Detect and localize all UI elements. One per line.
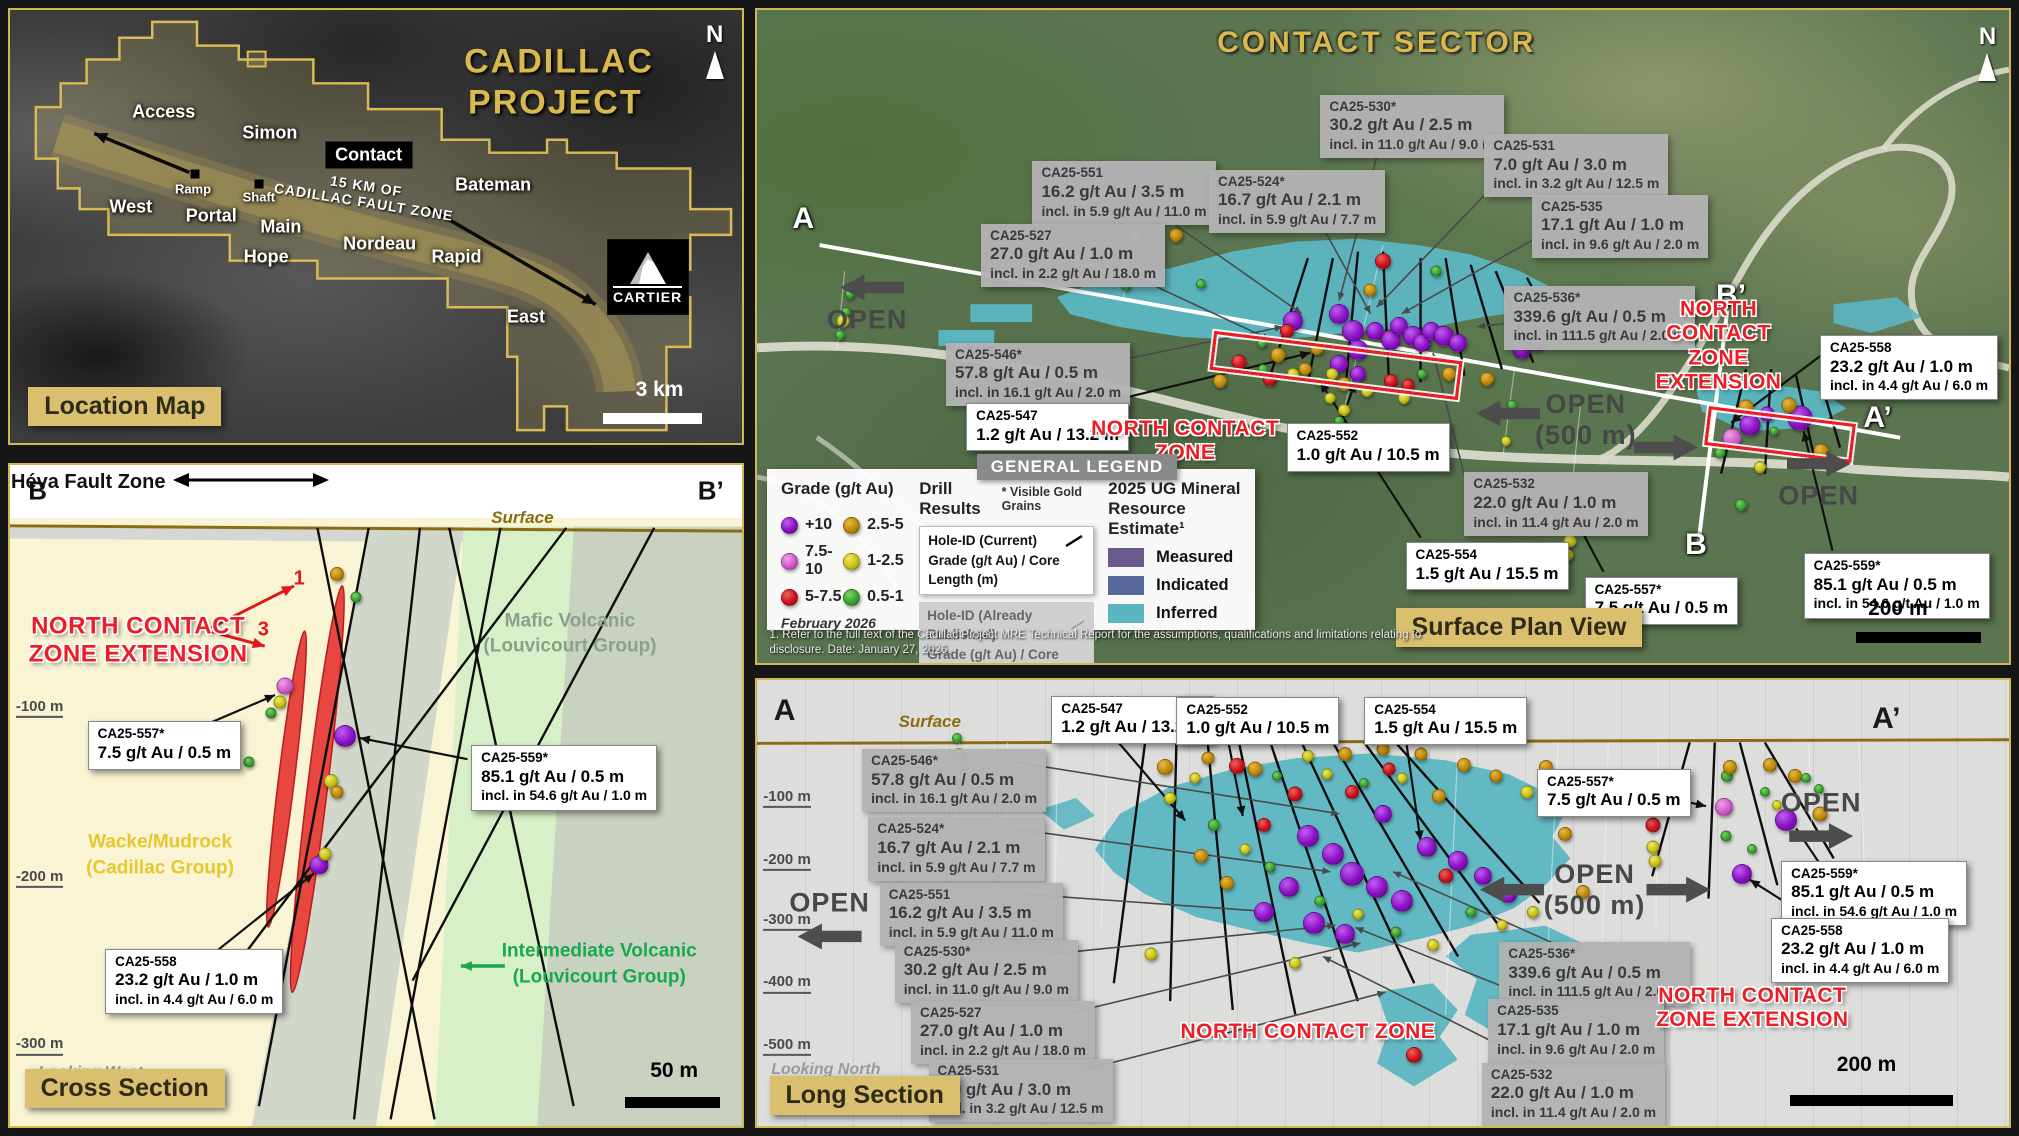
callout-i: incl. in 2.2 g/t Au / 18.0 m bbox=[920, 1042, 1086, 1059]
drill-callout-CA25-532: CA25-53222.0 g/t Au / 1.0 mincl. in 11.4… bbox=[1482, 1063, 1665, 1126]
grade-dot bbox=[1448, 851, 1468, 871]
label-lensnum: 1 bbox=[294, 568, 305, 591]
line-trace bbox=[1170, 742, 1176, 1001]
grade-dot bbox=[1303, 912, 1325, 934]
compass-letter: N bbox=[1979, 23, 1996, 50]
grade-dot bbox=[1754, 461, 1766, 473]
grade-dot bbox=[1383, 763, 1396, 776]
mre-title: 2025 UG Mineral Resource Estimate¹ bbox=[1108, 479, 1241, 539]
grade-dot bbox=[1449, 334, 1467, 352]
callout-i: incl. in 3.2 g/t Au / 12.5 m bbox=[1493, 175, 1659, 192]
grade-legend-dot bbox=[843, 589, 860, 606]
grade-dot bbox=[1732, 864, 1752, 884]
grade-dot bbox=[351, 592, 362, 603]
label-marker: A bbox=[774, 694, 796, 729]
grade-legend-label: 7.5-10 bbox=[805, 543, 843, 579]
label-open: OPEN bbox=[1778, 481, 1859, 512]
label-redzone: NORTHCONTACTZONEEXTENSION bbox=[1656, 298, 1782, 395]
callout-i: incl. in 5.9 g/t Au / 7.7 m bbox=[877, 859, 1035, 876]
grade-legend-label: +10 bbox=[805, 516, 832, 534]
label-zone: West bbox=[109, 197, 152, 218]
callout-g: 16.7 g/t Au / 2.1 m bbox=[877, 838, 1035, 859]
grade-dot bbox=[1297, 825, 1319, 847]
mre-legend-item-inferred: Inferred bbox=[1108, 604, 1241, 623]
panel-label-location-map: Location Map bbox=[28, 387, 221, 426]
grade-dot bbox=[1257, 818, 1271, 832]
label-depth: -200 m bbox=[763, 851, 811, 871]
callout-h: CA25-530* bbox=[904, 944, 1069, 960]
callout-h: CA25-552 bbox=[1297, 428, 1440, 444]
legend-grade-column: Grade (g/t Au) +107.5-105-7.52.5-51-2.50… bbox=[781, 479, 905, 622]
grade-dot bbox=[1496, 920, 1507, 931]
label-depth: -100 m bbox=[16, 698, 64, 718]
grade-dot bbox=[1480, 372, 1494, 386]
grade-dot bbox=[1164, 792, 1176, 804]
callout-h: CA25-558 bbox=[1781, 923, 1939, 939]
line-trace bbox=[259, 528, 369, 1106]
grade-dot bbox=[1414, 747, 1427, 760]
callout-g: 23.2 g/t Au / 1.0 m bbox=[1781, 939, 1939, 960]
callout-h: CA25-527 bbox=[990, 228, 1156, 244]
drill-callout-CA25-530*: CA25-530*30.2 g/t Au / 2.5 mincl. in 11.… bbox=[1320, 95, 1503, 158]
grade-legend-dot bbox=[781, 553, 798, 570]
callout-g: 1.5 g/t Au / 15.5 m bbox=[1416, 564, 1559, 585]
callout-i: incl. in 4.4 g/t Au / 6.0 m bbox=[1830, 377, 1988, 394]
callout-g: 22.0 g/t Au / 1.0 m bbox=[1473, 493, 1638, 514]
grade-legend-dot bbox=[843, 553, 860, 570]
label-sq bbox=[191, 169, 200, 178]
mre-swatch bbox=[1108, 548, 1144, 567]
panel-label-long-section: Long Section bbox=[770, 1076, 960, 1115]
current-sub: Grade (g/t Au) / Core Length (m) bbox=[928, 553, 1060, 588]
callout-h: CA25-527 bbox=[920, 1005, 1086, 1021]
label-zone: Main bbox=[260, 216, 301, 237]
grade-dot bbox=[1364, 284, 1377, 297]
line-trace bbox=[1471, 265, 1502, 369]
grade-legend-item: 7.5-10 bbox=[781, 543, 843, 579]
callout-i: incl. in 9.6 g/t Au / 2.0 m bbox=[1497, 1041, 1655, 1058]
callout-i: incl. in 4.4 g/t Au / 6.0 m bbox=[115, 991, 273, 1008]
label-depth: -100 m bbox=[763, 788, 811, 808]
north-compass: N bbox=[1978, 23, 1996, 81]
grade-dot bbox=[1248, 762, 1263, 777]
drill-callout-CA25-551: CA25-55116.2 g/t Au / 3.5 mincl. in 5.9 … bbox=[880, 883, 1063, 946]
line-ghost bbox=[1055, 742, 1058, 903]
grade-dot bbox=[1288, 786, 1303, 801]
grade-legend-label: 5-7.5 bbox=[805, 588, 841, 606]
label-lensnum: 3 bbox=[258, 619, 269, 642]
callout-i: incl. in 11.4 g/t Au / 2.0 m bbox=[1473, 514, 1638, 531]
drill-callout-CA25-551: CA25-55116.2 g/t Au / 3.5 mincl. in 5.9 … bbox=[1032, 161, 1215, 224]
callout-i: incl. in 5.9 g/t Au / 11.0 m bbox=[889, 924, 1054, 941]
grade-dot bbox=[1289, 957, 1301, 969]
grade-dot bbox=[1801, 773, 1811, 783]
panel-label-cross-section: Cross Section bbox=[25, 1069, 225, 1108]
callout-h: CA25-557* bbox=[98, 726, 232, 742]
mre-label: Inferred bbox=[1156, 604, 1217, 623]
mre-label: Indicated bbox=[1156, 576, 1228, 595]
grade-dot bbox=[1272, 771, 1282, 781]
drill-callout-CA25-552: CA25-5521.0 g/t Au / 10.5 m bbox=[1176, 697, 1339, 745]
heva-fault-zone-label: Héva Fault Zone bbox=[11, 471, 331, 494]
visible-gold-note: * Visible Gold Grains bbox=[1002, 485, 1095, 513]
drill-callout-CA25-559*: CA25-559*85.1 g/t Au / 0.5 mincl. in 54.… bbox=[471, 745, 657, 810]
line-trace bbox=[354, 528, 420, 1120]
drill-callout-CA25-558: CA25-55823.2 g/t Au / 1.0 mincl. in 4.4 … bbox=[1820, 335, 1998, 400]
grade-legend-item: 0.5-1 bbox=[843, 579, 905, 615]
mre-categories: MeasuredIndicatedInferred bbox=[1108, 548, 1241, 623]
callout-g: 1.5 g/t Au / 15.5 m bbox=[1374, 718, 1517, 739]
marker-b-prime: B’ bbox=[698, 476, 724, 507]
grade-dot bbox=[1208, 819, 1220, 831]
label-open: OPEN(500 m) bbox=[1535, 389, 1637, 451]
current-label: Hole-ID (Current) bbox=[928, 531, 1037, 551]
label-depth: -300 m bbox=[763, 911, 811, 931]
grade-legend-dot bbox=[843, 517, 860, 534]
grade-dot bbox=[952, 733, 962, 743]
callout-h: CA25-551 bbox=[889, 887, 1054, 903]
drill-callout-CA25-559*: CA25-559*85.1 g/t Au / 0.5 mincl. in 54.… bbox=[1781, 861, 1967, 926]
callout-g: 27.0 g/t Au / 1.0 m bbox=[920, 1021, 1086, 1042]
grade-dot bbox=[1280, 324, 1294, 338]
callout-i: incl. in 11.4 g/t Au / 2.0 m bbox=[1491, 1104, 1656, 1121]
line-ghost bbox=[1101, 742, 1107, 925]
drill-callout-CA25-554: CA25-5541.5 g/t Au / 15.5 m bbox=[1406, 542, 1569, 590]
grade-dot bbox=[1157, 759, 1173, 775]
grade-dot bbox=[1715, 798, 1733, 816]
grade-dot bbox=[1430, 266, 1441, 277]
mre-legend-item-indicated: Indicated bbox=[1108, 576, 1241, 595]
callout-h: CA25-552 bbox=[1186, 702, 1329, 718]
label-surface: Surface bbox=[899, 713, 961, 733]
callout-g: 85.1 g/t Au / 0.5 m bbox=[481, 767, 647, 788]
label-redzone: NORTH CONTACTZONE EXTENSION bbox=[1656, 984, 1849, 1032]
label-zone: Portal bbox=[186, 205, 237, 226]
callout-i: incl. in 5.9 g/t Au / 11.0 m bbox=[1041, 203, 1206, 220]
grade-dot bbox=[1321, 768, 1332, 779]
grade-dot bbox=[243, 757, 254, 768]
callout-g: 85.1 g/t Au / 0.5 m bbox=[1791, 882, 1957, 903]
grade-dot bbox=[1265, 862, 1276, 873]
grade-dot bbox=[1427, 939, 1439, 951]
drill-callout-CA25-558: CA25-55823.2 g/t Au / 1.0 mincl. in 4.4 … bbox=[1771, 918, 1949, 983]
scale-bar bbox=[625, 1097, 720, 1108]
grade-dot bbox=[1646, 817, 1661, 832]
callout-g: 17.1 g/t Au / 1.0 m bbox=[1497, 1020, 1655, 1041]
scale-bar bbox=[603, 413, 702, 424]
grade-dot bbox=[1375, 253, 1391, 269]
grade-legend-dot bbox=[781, 517, 798, 534]
label-marker: A’ bbox=[1872, 702, 1900, 737]
mre-legend-item-measured: Measured bbox=[1108, 548, 1241, 567]
compass-letter: N bbox=[706, 21, 723, 48]
grade-dot bbox=[1338, 747, 1352, 761]
grade-dot bbox=[1760, 787, 1770, 797]
grade-dot bbox=[1254, 902, 1274, 922]
drill-callout-CA25-524*: CA25-524*16.7 g/t Au / 2.1 mincl. in 5.9… bbox=[1209, 170, 1385, 233]
line-sline bbox=[10, 526, 742, 531]
callout-g: 1.0 g/t Au / 10.5 m bbox=[1186, 718, 1329, 739]
label-depth: -500 m bbox=[763, 1036, 811, 1056]
north-arrow-icon bbox=[1978, 53, 1996, 81]
cross-section-panel: B Héva Fault Zone B’ 50 m Cross Section … bbox=[8, 463, 744, 1128]
drill-callout-CA25-530*: CA25-530*30.2 g/t Au / 2.5 mincl. in 11.… bbox=[895, 940, 1078, 1003]
grade-dot bbox=[1714, 447, 1725, 458]
grade-dot bbox=[1196, 279, 1206, 289]
scale-label: 50 m bbox=[650, 1059, 698, 1083]
callout-h: CA25-554 bbox=[1416, 547, 1559, 563]
grade-dot bbox=[1325, 392, 1336, 403]
north-compass: N bbox=[706, 21, 724, 79]
scale-bar bbox=[1790, 1095, 1953, 1106]
callout-g: 7.0 g/t Au / 3.0 m bbox=[1493, 155, 1659, 176]
grade-dot bbox=[1213, 374, 1227, 388]
grade-dot bbox=[1558, 827, 1572, 841]
scale-label: 200 m bbox=[1868, 597, 1928, 621]
label-redzone: NORTH CONTACTZONE EXTENSION bbox=[29, 613, 248, 668]
grade-dot bbox=[1190, 773, 1201, 784]
callout-g: 339.6 g/t Au / 0.5 m bbox=[1508, 963, 1680, 984]
callout-g: 23.2 g/t Au / 1.0 m bbox=[1830, 357, 1988, 378]
grade-legend-item: 5-7.5 bbox=[781, 579, 843, 615]
figure-root: Contact N CARTIER 3 km Location Map CADI… bbox=[0, 0, 2019, 1136]
grade-dot bbox=[1340, 862, 1364, 886]
legend-mre-column: 2025 UG Mineral Resource Estimate¹ Measu… bbox=[1108, 479, 1241, 622]
callout-h: CA25-532 bbox=[1473, 476, 1638, 492]
callout-h: CA25-558 bbox=[115, 954, 273, 970]
grade-dot bbox=[1747, 844, 1757, 854]
grade-title: Grade (g/t Au) bbox=[781, 479, 905, 499]
scale-bar bbox=[1856, 632, 1981, 643]
label-zone: East bbox=[507, 307, 545, 328]
grade-dot bbox=[1229, 758, 1245, 774]
grade-dot bbox=[1302, 750, 1314, 762]
legend-holeid-current: Hole-ID (Current) Grade (g/t Au) / Core … bbox=[919, 526, 1094, 595]
callout-g: 23.2 g/t Au / 1.0 m bbox=[115, 970, 273, 991]
arrowhead bbox=[1352, 942, 1361, 949]
arrowhead bbox=[1322, 867, 1330, 874]
arrowhead bbox=[1236, 805, 1245, 816]
label-zone: Hope bbox=[244, 246, 289, 267]
callout-h: CA25-551 bbox=[1041, 165, 1206, 181]
scale-label: 200 m bbox=[1837, 1053, 1897, 1077]
callout-h: CA25-559* bbox=[481, 750, 647, 766]
callout-h: CA25-557* bbox=[1547, 774, 1681, 790]
drill-callout-CA25-524*: CA25-524*16.7 g/t Au / 2.1 mincl. in 5.9… bbox=[868, 817, 1044, 880]
callout-g: 30.2 g/t Au / 2.5 m bbox=[904, 960, 1069, 981]
drill-callout-CA25-532: CA25-53222.0 g/t Au / 1.0 mincl. in 11.4… bbox=[1464, 472, 1647, 535]
label-marker: A’ bbox=[1863, 401, 1891, 436]
label-zone: Simon bbox=[242, 123, 297, 144]
grade-legend-item: 2.5-5 bbox=[843, 507, 905, 543]
callout-i: incl. in 111.5 g/t Au / 2.0 m bbox=[1508, 983, 1680, 1000]
arrowhead bbox=[360, 736, 371, 745]
mre-footnote: 1. Refer to the full text of the Cadilla… bbox=[770, 628, 1446, 658]
line-trace bbox=[1709, 742, 1715, 898]
grade-dot bbox=[1406, 1047, 1422, 1063]
label-open: OPEN bbox=[827, 305, 908, 336]
grade-dot bbox=[1465, 906, 1476, 917]
grade-dot bbox=[1338, 404, 1350, 416]
grade-dot bbox=[1781, 398, 1796, 413]
drill-callout-CA25-554: CA25-5541.5 g/t Au / 15.5 m bbox=[1364, 697, 1527, 745]
drill-callout-CA25-527: CA25-52727.0 g/t Au / 1.0 mincl. in 2.2 … bbox=[981, 224, 1165, 287]
grade-dot bbox=[330, 567, 344, 581]
callout-h: CA25-546* bbox=[871, 753, 1037, 769]
label-redzone: NORTH CONTACT ZONE bbox=[1180, 1020, 1435, 1044]
callout-g: 57.8 g/t Au / 0.5 m bbox=[871, 770, 1037, 791]
label-zone: Rapid bbox=[432, 246, 482, 267]
line-mapb bbox=[94, 133, 189, 172]
callout-i: incl. in 16.1 g/t Au / 2.0 m bbox=[871, 790, 1037, 807]
callout-h: CA25-535 bbox=[1497, 1003, 1655, 1019]
callout-i: incl. in 16.1 g/t Au / 2.0 m bbox=[955, 384, 1121, 401]
drill-callout-CA25-552: CA25-5521.0 g/t Au / 10.5 m bbox=[1287, 423, 1450, 471]
grade-dot bbox=[1432, 789, 1446, 803]
grade-dot bbox=[1648, 854, 1661, 867]
callout-h: CA25-524* bbox=[877, 821, 1035, 837]
cartier-logo: CARTIER bbox=[607, 239, 689, 315]
grade-dot bbox=[1194, 849, 1208, 863]
cartier-wordmark: CARTIER bbox=[613, 286, 682, 305]
label-zone: Ramp bbox=[175, 182, 211, 197]
grade-dot bbox=[1335, 924, 1355, 944]
label-zone: Access bbox=[132, 101, 195, 122]
legend-header: GENERAL LEGEND bbox=[977, 454, 1177, 480]
grade-dot bbox=[1169, 228, 1183, 242]
grade-dot bbox=[1220, 876, 1234, 890]
callout-g: 22.0 g/t Au / 1.0 m bbox=[1491, 1083, 1656, 1104]
grade-legend-label: 2.5-5 bbox=[867, 516, 903, 534]
callout-i: incl. in 5.9 g/t Au / 7.7 m bbox=[1218, 211, 1376, 228]
callout-i: incl. in 3.2 g/t Au / 12.5 m bbox=[938, 1100, 1104, 1117]
grade-legend-label: 1-2.5 bbox=[867, 552, 903, 570]
callout-g: 1.0 g/t Au / 10.5 m bbox=[1297, 445, 1440, 466]
callout-h: CA25-524* bbox=[1218, 174, 1376, 190]
label-marker: A bbox=[792, 202, 814, 237]
label-zone: Nordeau bbox=[343, 233, 416, 254]
callout-g: 7.5 g/t Au / 0.5 m bbox=[98, 743, 232, 764]
label-lm-title: PROJECT bbox=[468, 84, 643, 123]
callout-h: CA25-532 bbox=[1491, 1067, 1656, 1083]
arrowhead bbox=[1695, 800, 1706, 809]
grade-dot bbox=[1457, 758, 1471, 772]
grade-dot bbox=[331, 786, 344, 799]
callout-h: CA25-531 bbox=[1493, 138, 1659, 154]
grade-dot bbox=[1374, 805, 1392, 823]
callout-g: 27.0 g/t Au / 1.0 m bbox=[990, 244, 1156, 265]
line-trace bbox=[317, 528, 434, 1120]
grade-legend-item: +10 bbox=[781, 507, 843, 543]
heva-label-text: Héva Fault Zone bbox=[11, 471, 165, 493]
grade-dot bbox=[318, 847, 331, 860]
callout-g: 30.2 g/t Au / 2.5 m bbox=[1329, 115, 1494, 136]
callout-h: CA25-531 bbox=[938, 1063, 1104, 1079]
grade-dot bbox=[1763, 758, 1777, 772]
callout-h: CA25-554 bbox=[1374, 702, 1517, 718]
grade-dot bbox=[1240, 844, 1251, 855]
grade-dot bbox=[1390, 926, 1401, 937]
callout-h: CA25-546* bbox=[955, 347, 1121, 363]
drill-callout-CA25-527: CA25-52727.0 g/t Au / 1.0 mincl. in 2.2 … bbox=[911, 1001, 1095, 1064]
grade-dot bbox=[1723, 760, 1737, 774]
callout-g: 85.1 g/t Au / 0.5 m bbox=[1814, 575, 1980, 596]
drill-callout-CA25-558: CA25-55823.2 g/t Au / 1.0 mincl. in 4.4 … bbox=[105, 949, 283, 1014]
callout-h: CA25-535 bbox=[1541, 199, 1699, 215]
grade-legend-dot bbox=[781, 589, 798, 606]
label-open: OPEN bbox=[1781, 787, 1862, 818]
drill-callout-CA25-557*: CA25-557*7.5 g/t Au / 0.5 m bbox=[88, 721, 242, 769]
label-zone: Shaft bbox=[243, 191, 276, 206]
mre-swatch bbox=[1108, 576, 1144, 595]
grade-dot bbox=[1520, 785, 1533, 798]
grade-dot bbox=[1489, 769, 1502, 782]
label-marker: B bbox=[1685, 528, 1707, 563]
grade-dot bbox=[1345, 785, 1359, 799]
callout-h: CA25-557* bbox=[1595, 582, 1729, 598]
callout-i: incl. in 54.6 g/t Au / 1.0 m bbox=[481, 787, 647, 804]
contact-sector-highlight: Contact bbox=[325, 142, 412, 169]
grade-dot bbox=[1788, 769, 1802, 783]
line-lead bbox=[1067, 943, 1360, 1013]
cross-section-header: B Héva Fault Zone B’ bbox=[10, 465, 742, 518]
surface-plan-panel: CONTACT SECTOR N GENERAL LEGEND Grade (g… bbox=[755, 8, 2011, 665]
label-open: OPEN(500 m) bbox=[1544, 859, 1646, 921]
callout-i: incl. in 4.4 g/t Au / 6.0 m bbox=[1781, 960, 1939, 977]
label-unit: Mafic Volcanic(Louvicourt Group) bbox=[483, 608, 656, 659]
grade-dot bbox=[1359, 778, 1369, 788]
scale-label: 3 km bbox=[636, 378, 684, 402]
callout-h: CA25-559* bbox=[1814, 558, 1980, 574]
long-section-panel: Long Section 200 m AA’SurfaceNORTH CONTA… bbox=[755, 678, 2011, 1128]
grade-dot bbox=[1201, 752, 1214, 765]
drill-results-title: Drill Results bbox=[919, 479, 993, 519]
mountain-icon bbox=[626, 250, 670, 286]
grade-dot bbox=[1474, 867, 1492, 885]
grade-dot bbox=[1501, 436, 1511, 446]
callout-i: incl. in 9.6 g/t Au / 2.0 m bbox=[1541, 236, 1699, 253]
drill-callout-CA25-557*: CA25-557*7.5 g/t Au / 0.5 m bbox=[1537, 769, 1691, 817]
callout-h: CA25-559* bbox=[1791, 866, 1957, 882]
label-surface: Surface bbox=[491, 508, 553, 528]
grade-dot bbox=[1527, 906, 1539, 918]
arrowhead bbox=[461, 961, 472, 971]
callout-g: 7.0 g/t Au / 3.0 m bbox=[938, 1080, 1104, 1101]
grade-dot bbox=[1735, 499, 1747, 511]
grade-dot bbox=[1279, 877, 1299, 897]
double-arrow-icon bbox=[171, 472, 331, 488]
grade-dot bbox=[274, 695, 287, 708]
callout-g: 16.2 g/t Au / 3.5 m bbox=[1041, 182, 1206, 203]
legend-drill-column: Drill Results * Visible Gold Grains Hole… bbox=[919, 479, 1094, 622]
drill-callout-CA25-531: CA25-5317.0 g/t Au / 3.0 mincl. in 3.2 g… bbox=[1484, 134, 1668, 197]
grade-scale: +107.5-105-7.52.5-51-2.50.5-1 bbox=[781, 507, 905, 615]
grade-dot bbox=[1438, 869, 1453, 884]
callout-g: 16.2 g/t Au / 3.5 m bbox=[889, 903, 1054, 924]
line-lead bbox=[1047, 925, 1335, 954]
label-lm-title: CADILLAC bbox=[464, 42, 654, 81]
grade-dot bbox=[1721, 831, 1732, 842]
callout-i: incl. in 2.2 g/t Au / 18.0 m bbox=[990, 265, 1156, 282]
label-zone: Bateman bbox=[455, 175, 531, 196]
general-legend: GENERAL LEGEND Grade (g/t Au) +107.5-105… bbox=[767, 469, 1255, 630]
drill-callout-CA25-535: CA25-53517.1 g/t Au / 1.0 mincl. in 9.6 … bbox=[1488, 999, 1664, 1062]
panel-title-contact-sector: CONTACT SECTOR bbox=[1217, 25, 1536, 60]
callout-h: CA25-530* bbox=[1329, 99, 1494, 115]
mre-swatch bbox=[1108, 604, 1144, 623]
label-unit: Wacke/Mudrock(Cadillac Group) bbox=[86, 829, 234, 880]
callout-h: CA25-536* bbox=[1508, 946, 1680, 962]
